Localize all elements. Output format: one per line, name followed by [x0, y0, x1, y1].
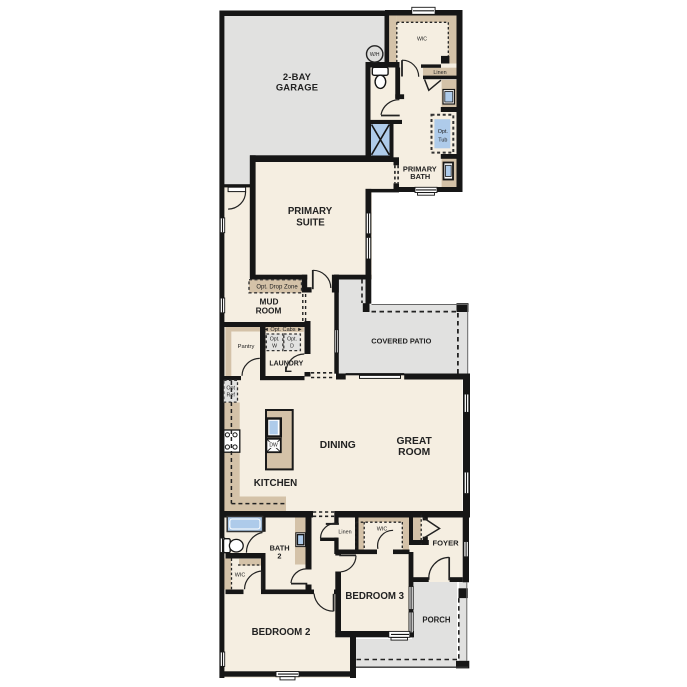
svg-text:W/H: W/H	[370, 52, 380, 58]
svg-text:W: W	[272, 343, 277, 349]
svg-text:GARAGE: GARAGE	[276, 81, 318, 92]
svg-text:LAUNDRY: LAUNDRY	[269, 360, 303, 367]
svg-text:WIC: WIC	[235, 573, 246, 579]
svg-text:FOYER: FOYER	[433, 538, 460, 547]
svg-text:Linen: Linen	[433, 70, 446, 76]
svg-text:DINING: DINING	[320, 440, 356, 451]
svg-text:2: 2	[277, 551, 281, 560]
svg-text:Opt: Opt	[226, 385, 235, 391]
svg-text:BEDROOM 3: BEDROOM 3	[345, 591, 404, 602]
svg-text:BATH: BATH	[410, 172, 430, 181]
svg-text:WIC: WIC	[377, 527, 388, 533]
svg-text:BEDROOM 2: BEDROOM 2	[252, 627, 311, 638]
svg-text:Ref: Ref	[227, 393, 236, 399]
svg-text:DW: DW	[269, 443, 278, 449]
svg-text:PORCH: PORCH	[422, 616, 451, 625]
svg-text:ROOM: ROOM	[398, 447, 430, 458]
svg-text:ROOM: ROOM	[256, 306, 282, 316]
svg-text:Opt.: Opt.	[287, 337, 297, 343]
svg-text:2-BAY: 2-BAY	[283, 71, 312, 82]
svg-text:Opt.: Opt.	[438, 129, 448, 135]
svg-text:KITCHEN: KITCHEN	[254, 478, 298, 489]
svg-text:D: D	[290, 343, 294, 349]
svg-text:Tub: Tub	[438, 137, 447, 143]
svg-text:SUITE: SUITE	[296, 218, 325, 229]
svg-text:Pantry: Pantry	[238, 344, 255, 350]
svg-text:Opt. Drop Zone: Opt. Drop Zone	[256, 285, 298, 291]
svg-text:GREAT: GREAT	[397, 436, 433, 447]
svg-text:◄ Opt. Cabs ►: ◄ Opt. Cabs ►	[263, 327, 302, 333]
svg-text:Linen: Linen	[338, 530, 351, 536]
svg-text:PRIMARY: PRIMARY	[288, 206, 333, 217]
svg-text:Opt.: Opt.	[270, 337, 280, 343]
svg-text:COVERED PATIO: COVERED PATIO	[371, 337, 431, 346]
svg-text:WIC: WIC	[417, 36, 427, 42]
